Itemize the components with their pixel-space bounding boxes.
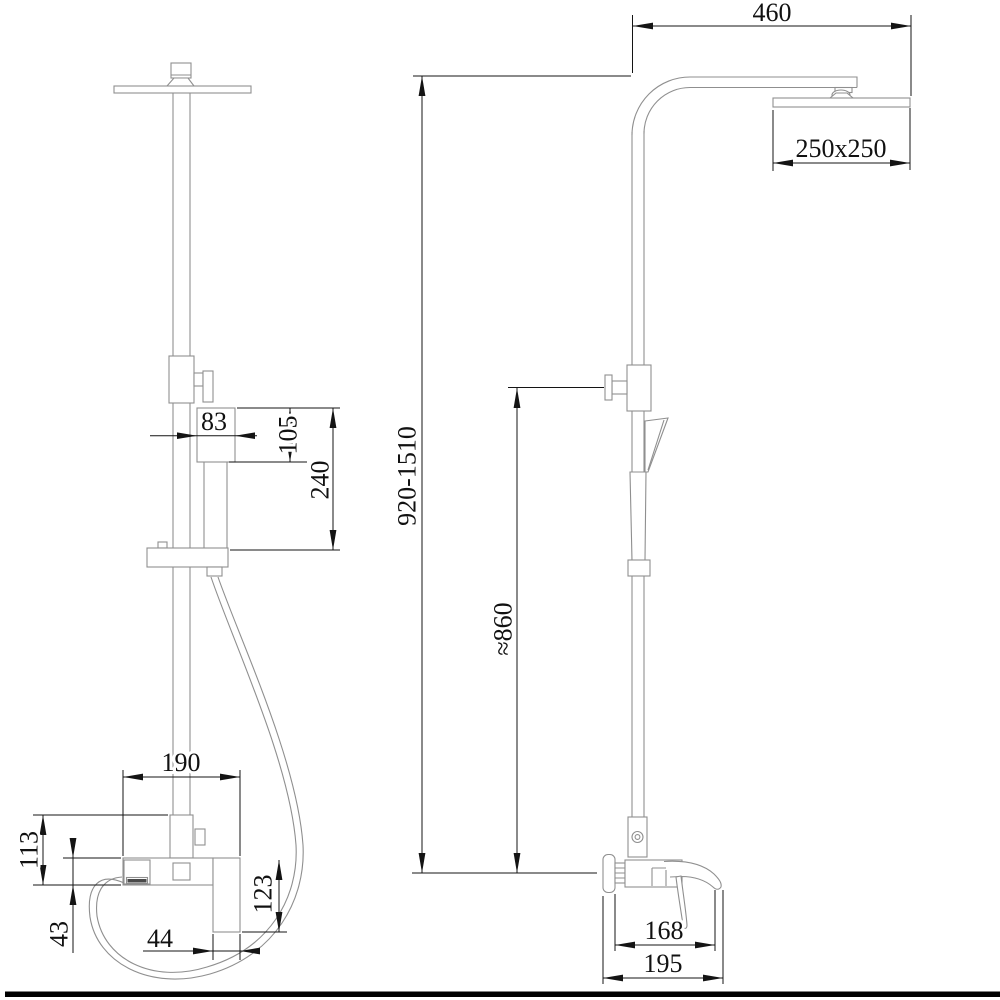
arrowhead <box>235 432 255 439</box>
sheet-border-line <box>5 992 1000 998</box>
side-view-dimensions: 460 250x250 920-1510 ≈860 168 195 <box>393 0 912 984</box>
dim-label-handshower-width: 83 <box>201 407 227 436</box>
ext-line <box>213 934 240 960</box>
arrowhead <box>891 23 911 30</box>
tub-spout-front <box>213 858 240 932</box>
dim-label-riser-to-body: 113 <box>15 831 44 869</box>
riser-bottom-knob <box>195 829 205 845</box>
dim-label-hose-clearance: ≈860 <box>489 602 518 655</box>
slider-knob-lever <box>203 371 213 402</box>
head-connector-cone <box>167 78 194 86</box>
wall-flange <box>603 855 615 893</box>
arrowhead <box>123 774 143 781</box>
dim-label-arm-reach: 460 <box>753 0 792 27</box>
riser-bottom-connector-side <box>628 817 647 857</box>
dim-label-body-height: 43 <box>45 921 74 947</box>
arrowhead <box>419 853 426 873</box>
handshower-holder-seal <box>128 879 147 883</box>
slider-knob-flange-side <box>605 375 612 400</box>
riser-pipe <box>173 93 190 815</box>
arrowhead <box>70 838 77 858</box>
arrowhead <box>633 23 653 30</box>
arrowhead <box>890 160 910 167</box>
arrowhead <box>220 774 240 781</box>
dim-label-spout-drop: 123 <box>249 875 278 914</box>
slider-knob-stem <box>194 373 203 386</box>
front-view <box>89 63 303 979</box>
dim-label-column-height: 920-1510 <box>393 426 422 526</box>
riser-bottom-connector <box>170 815 193 858</box>
arrowhead <box>615 942 635 949</box>
hand-shower-handle <box>204 462 227 548</box>
arrowhead <box>240 948 260 955</box>
rain-shower-head-side <box>773 98 910 107</box>
arrowhead <box>603 975 623 982</box>
hose-connector <box>207 567 222 576</box>
arrowhead <box>695 942 715 949</box>
arrowhead <box>773 160 793 167</box>
shower-set-drawing: 83 105 240 190 113 43 44 <box>0 0 1000 1000</box>
shower-hose-outer <box>89 577 303 979</box>
dim-label-spout-reach: 168 <box>645 916 684 945</box>
dim-label-head-size: 250x250 <box>796 134 887 163</box>
arrowhead <box>514 388 521 408</box>
arrowhead <box>193 948 213 955</box>
diverter-knob-front <box>173 863 190 880</box>
rain-shower-head-edge <box>114 86 251 93</box>
arrowhead <box>70 885 77 905</box>
side-view <box>603 77 910 928</box>
dim-label-handshower-length: 240 <box>306 461 335 500</box>
slide-bracket <box>147 548 228 567</box>
hand-shower-handle-side <box>630 472 646 560</box>
slider-block-side <box>627 365 651 411</box>
ext-line <box>412 76 631 873</box>
dim-label-mixer-width: 190 <box>162 748 201 777</box>
slide-bracket-nub <box>158 542 167 548</box>
dim-label-total-depth: 195 <box>644 949 683 978</box>
arrowhead <box>419 76 426 96</box>
arrowhead <box>276 912 283 932</box>
dim-label-spout-width: 44 <box>147 924 173 953</box>
arrowhead <box>514 853 521 873</box>
arrowhead <box>177 432 197 439</box>
technical-drawing-sheet: 83 105 240 190 113 43 44 <box>0 0 1000 1000</box>
arrowhead <box>330 530 337 550</box>
arrowhead <box>703 975 723 982</box>
slider-knob-stem-side <box>612 381 627 394</box>
slider-block <box>169 356 194 403</box>
arrowhead <box>330 408 337 428</box>
head-connector-nut <box>171 63 191 78</box>
slide-bracket-side <box>628 560 650 576</box>
dim-label-handshower-head-height: 105 <box>274 416 303 455</box>
